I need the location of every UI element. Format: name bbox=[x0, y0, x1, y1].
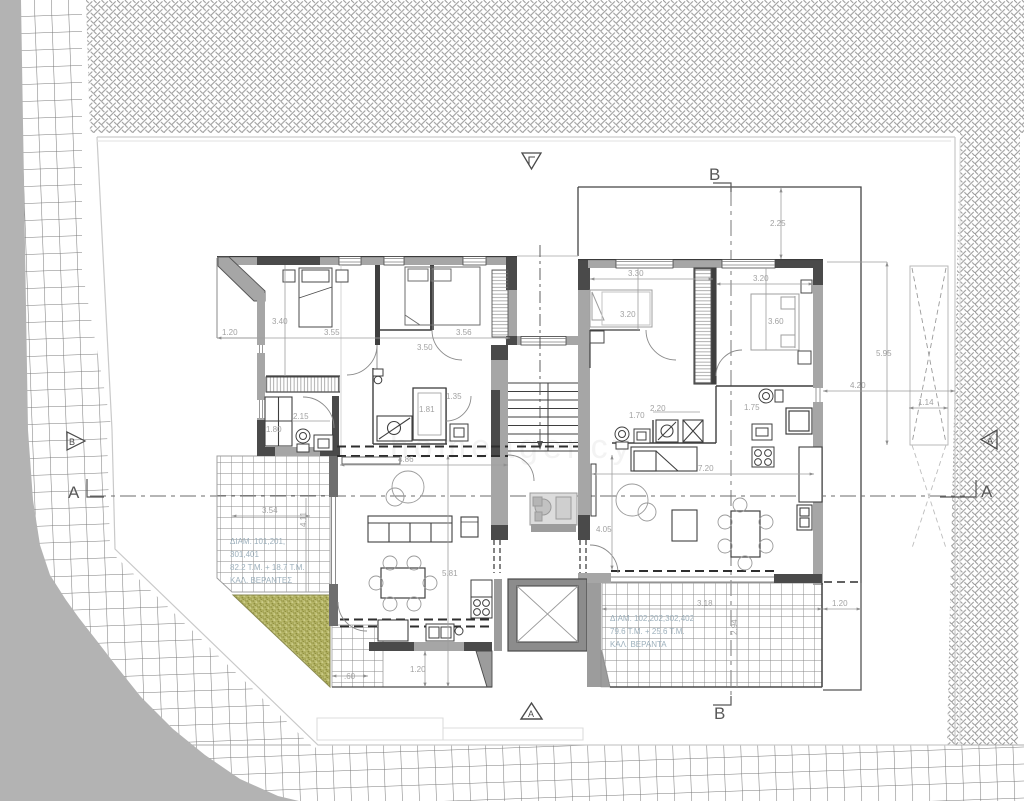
svg-text:A: A bbox=[981, 482, 993, 501]
svg-text:1.20: 1.20 bbox=[222, 328, 238, 337]
svg-text:5.81: 5.81 bbox=[442, 569, 458, 578]
svg-text:1.20: 1.20 bbox=[410, 665, 426, 674]
svg-text:3.55: 3.55 bbox=[324, 328, 340, 337]
svg-text:3.18: 3.18 bbox=[697, 599, 713, 608]
svg-text:1.20: 1.20 bbox=[832, 599, 848, 608]
svg-text:3.50: 3.50 bbox=[417, 343, 433, 352]
svg-text:4.20: 4.20 bbox=[850, 381, 866, 390]
svg-text:B: B bbox=[709, 165, 720, 184]
svg-text:3.20: 3.20 bbox=[620, 310, 636, 319]
svg-text:1.35: 1.35 bbox=[446, 392, 462, 401]
svg-text:2.94: 2.94 bbox=[730, 619, 739, 635]
svg-text:ΔΙΑΜ. 101,201,: ΔΙΑΜ. 101,201, bbox=[230, 537, 285, 546]
svg-text:79.6 Τ.Μ. + 25.6 Τ.Μ.: 79.6 Τ.Μ. + 25.6 Τ.Μ. bbox=[610, 627, 685, 636]
svg-text:4.86: 4.86 bbox=[398, 455, 414, 464]
svg-text:B: B bbox=[69, 437, 75, 447]
svg-text:1.70: 1.70 bbox=[629, 411, 645, 420]
svg-text:7.20: 7.20 bbox=[698, 464, 714, 473]
svg-text:3.60: 3.60 bbox=[768, 317, 784, 326]
svg-text:1.75: 1.75 bbox=[744, 403, 760, 412]
svg-text:ΚΑΛ. ΒΕΡΑΝΤΕΣ: ΚΑΛ. ΒΕΡΑΝΤΕΣ bbox=[230, 576, 292, 585]
svg-text:3.56: 3.56 bbox=[456, 328, 472, 337]
svg-text:3.20: 3.20 bbox=[753, 274, 769, 283]
svg-text:2.25: 2.25 bbox=[770, 219, 786, 228]
svg-text:2.15: 2.15 bbox=[293, 412, 309, 421]
svg-text:3.54: 3.54 bbox=[262, 506, 278, 515]
svg-text:B: B bbox=[714, 704, 725, 723]
svg-text:2.20: 2.20 bbox=[650, 404, 666, 413]
svg-text:82.2 Τ.Μ. + 18.7 Τ.Μ.: 82.2 Τ.Μ. + 18.7 Τ.Μ. bbox=[230, 563, 305, 572]
svg-text:301,401: 301,401 bbox=[230, 550, 259, 559]
svg-text:4.11: 4.11 bbox=[299, 511, 308, 527]
svg-text:ΚΑΛ. ΒΕΡΑΝΤΑ: ΚΑΛ. ΒΕΡΑΝΤΑ bbox=[610, 640, 667, 649]
svg-text:.60: .60 bbox=[344, 672, 356, 681]
svg-text:3.40: 3.40 bbox=[272, 317, 288, 326]
svg-text:3.30: 3.30 bbox=[628, 269, 644, 278]
svg-text:1.80: 1.80 bbox=[266, 425, 282, 434]
svg-text:1.14: 1.14 bbox=[918, 398, 934, 407]
svg-text:A: A bbox=[528, 709, 534, 719]
svg-text:A: A bbox=[987, 436, 993, 446]
svg-text:4.05: 4.05 bbox=[596, 525, 612, 534]
svg-text:5.95: 5.95 bbox=[876, 349, 892, 358]
svg-text:A: A bbox=[68, 483, 80, 502]
svg-text:1.81: 1.81 bbox=[419, 405, 435, 414]
svg-text:ΔΙΑΜ. 102,202,302,402: ΔΙΑΜ. 102,202,302,402 bbox=[610, 614, 695, 623]
